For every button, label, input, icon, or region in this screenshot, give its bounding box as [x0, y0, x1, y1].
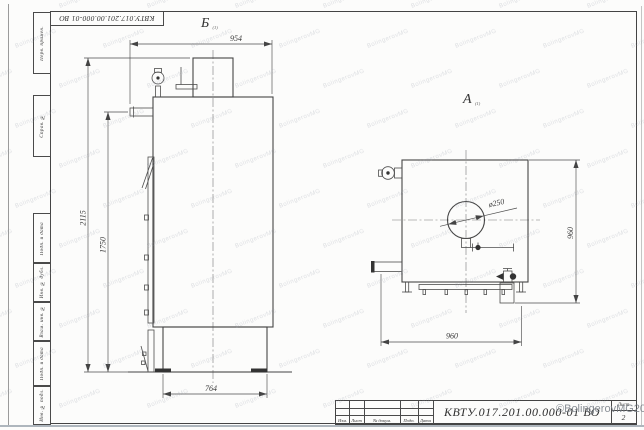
base-channel [419, 285, 512, 290]
tb-col-izm: Изм. [336, 416, 349, 424]
front-view [371, 150, 540, 313]
dim-total-height: 2115 [79, 210, 88, 225]
boiler-body-front [402, 160, 528, 282]
foot-pad [251, 369, 267, 373]
ash-door-strip [148, 330, 154, 372]
ash-door-handle [141, 346, 148, 371]
dim-front-height: 960 [566, 227, 575, 239]
dim-base-width: 764 [205, 384, 217, 393]
view-label-b: Б [200, 16, 209, 31]
safety-valve-stem [156, 86, 161, 97]
side-view [128, 50, 292, 383]
drawing-sheet: КВТУ.017.201.00.000-01 ВО Перв. примен. … [0, 0, 644, 430]
view-label-a: А [462, 92, 472, 107]
tb-col-list: Лист [349, 416, 364, 424]
foot-pad [155, 369, 171, 373]
dim-diameter: ø250 [487, 197, 506, 210]
bottom-left-pipe [373, 262, 402, 272]
dim-mid-height: 1750 [99, 237, 108, 253]
dim-front-width: 960 [446, 332, 458, 341]
drawing-canvas: 954 2115 1750 764 960 960 ø250 [0, 0, 644, 430]
drain-valve [475, 245, 480, 250]
tb-col-ndoc: № докум. [364, 416, 400, 424]
view-label-b-sub: (1) [213, 25, 219, 30]
view-label-a-sub: (1) [475, 101, 481, 106]
leg [520, 282, 523, 292]
tb-col-podp: Подп. [400, 416, 418, 424]
copyright-watermark: ©BolingerovMG2021 [556, 403, 644, 415]
tb-col-data: Дата [418, 416, 433, 424]
base-pedestal [163, 327, 267, 372]
bottom-valve [510, 273, 516, 279]
leg [406, 282, 409, 292]
view-labels: Б (1) А (1) [200, 16, 481, 107]
dim-top-width: 954 [230, 34, 242, 43]
